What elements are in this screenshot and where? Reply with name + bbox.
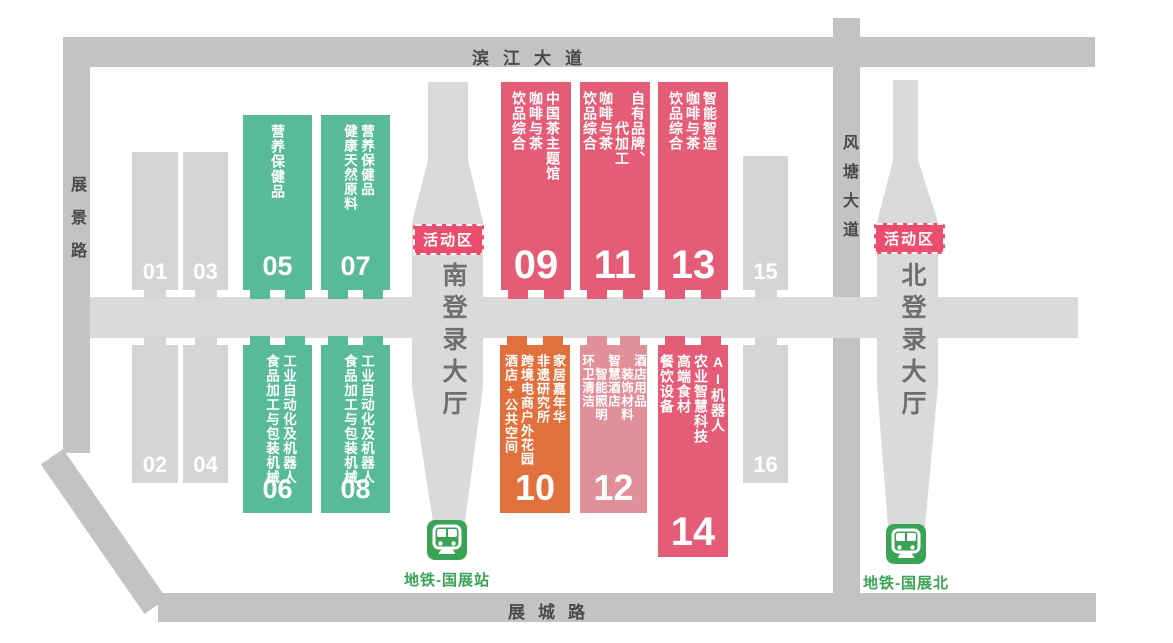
hall-02[interactable]: 02 — [132, 345, 178, 483]
hall-connector — [755, 336, 777, 345]
hall-category-text: 家居嘉年华非遗研究所跨境电商户外花园酒店+公共空间 — [502, 354, 566, 466]
hall-10[interactable]: 家居嘉年华非遗研究所跨境电商户外花园酒店+公共空间10 — [500, 345, 570, 513]
hall-connector — [701, 336, 721, 345]
north-entry-hall-label: 北登录大厅 — [894, 262, 930, 422]
hall-04[interactable]: 04 — [183, 345, 228, 483]
hall-connector — [195, 290, 217, 299]
hall-connector — [250, 336, 270, 345]
hall-connector — [507, 336, 527, 345]
hall-connector — [587, 336, 607, 345]
hall-03[interactable]: 03 — [183, 152, 228, 290]
hall-connector — [195, 336, 217, 345]
hall-connector — [623, 290, 643, 299]
hall-category-text: AI机器人农业智慧科技高端食材餐饮设备 — [658, 354, 726, 444]
hall-number: 04 — [183, 452, 228, 478]
road-label-top: 滨江大道 — [472, 44, 596, 69]
hall-connector — [363, 336, 383, 345]
metro-station-label-north: 地铁-国展北 — [836, 572, 976, 593]
hall-connector — [250, 290, 270, 299]
hall-category-text: 工业自动化及机器人食品加工与包装机械 — [263, 354, 297, 485]
hall-number: 12 — [580, 467, 647, 509]
hall-connector — [701, 290, 721, 299]
hall-connector — [587, 290, 607, 299]
hall-13[interactable]: 智能智造咖啡与茶饮品综合13 — [658, 82, 728, 290]
hall-number: 01 — [132, 259, 178, 285]
hall-11[interactable]: 自有品牌、 代加工咖啡与茶饮品综合11 — [580, 82, 650, 290]
road-label-bottom: 展城路 — [508, 598, 598, 623]
hall-number: 05 — [243, 251, 312, 282]
hall-connector — [285, 290, 305, 299]
hall-connector — [543, 336, 563, 345]
hall-05[interactable]: 营养保健品05 — [243, 115, 312, 290]
hall-connector — [328, 290, 348, 299]
hall-connector — [285, 336, 305, 345]
hall-connector — [755, 290, 777, 299]
hall-number: 06 — [243, 474, 312, 505]
hall-connector — [665, 290, 685, 299]
hall-number: 09 — [501, 243, 571, 288]
metro-station-icon-south[interactable] — [427, 520, 467, 560]
hall-number: 14 — [658, 510, 728, 555]
hall-number: 02 — [132, 452, 178, 478]
hall-06[interactable]: 工业自动化及机器人食品加工与包装机械06 — [243, 345, 312, 513]
hall-category-text: 营养保健品 — [269, 124, 286, 199]
hall-connector — [144, 336, 166, 345]
metro-station-icon-north[interactable] — [886, 524, 926, 564]
hall-category-text: 工业自动化及机器人食品加工与包装机械 — [341, 354, 375, 485]
hall-16[interactable]: 16 — [743, 345, 788, 483]
hall-connector — [144, 290, 166, 299]
road-zhancheng-road — [158, 593, 1096, 622]
exhibition-venue-map: 滨江大道 展景路 风塘大道 展城路 南登录大厅 北登录大厅 活动区 活动区 01… — [0, 0, 1173, 643]
hall-number: 08 — [321, 474, 390, 505]
south-entry-hall-label: 南登录大厅 — [435, 262, 471, 422]
road-label-left: 展景路 — [64, 176, 88, 275]
hall-01[interactable]: 01 — [132, 152, 178, 290]
metro-station-label-south: 地铁-国展站 — [377, 569, 517, 590]
hall-category-text: 中国茶主题馆咖啡与茶饮品综合 — [510, 91, 561, 181]
hall-category-text: 智能智造咖啡与茶饮品综合 — [667, 91, 718, 151]
hall-number: 16 — [743, 452, 788, 478]
hall-15[interactable]: 15 — [743, 156, 788, 290]
hall-number: 13 — [658, 243, 728, 288]
hall-number: 03 — [183, 259, 228, 285]
hall-number: 11 — [580, 243, 650, 288]
hall-09[interactable]: 中国茶主题馆咖啡与茶饮品综合09 — [501, 82, 571, 290]
hall-category-text: 自有品牌、 代加工咖啡与茶饮品综合 — [582, 91, 646, 166]
hall-connector — [665, 336, 685, 345]
hall-category-text: 营养保健品健康天然原料 — [341, 124, 375, 211]
hall-number: 07 — [321, 251, 390, 282]
hall-08[interactable]: 工业自动化及机器人食品加工与包装机械08 — [321, 345, 390, 513]
hall-connector — [328, 336, 348, 345]
hall-07[interactable]: 营养保健品健康天然原料07 — [321, 115, 390, 290]
hall-connector — [544, 290, 564, 299]
hall-14[interactable]: AI机器人农业智慧科技高端食材餐饮设备14 — [658, 345, 728, 557]
hall-category-text: 酒店用品 装饰材料智慧酒店 智能照明环卫清洁 — [580, 354, 645, 422]
activity-area-badge-south: 活动区 — [413, 224, 484, 255]
hall-connector — [363, 290, 383, 299]
activity-area-badge-north: 活动区 — [874, 223, 945, 254]
hall-12[interactable]: 酒店用品 装饰材料智慧酒店 智能照明环卫清洁12 — [580, 345, 647, 513]
hall-number: 15 — [743, 259, 788, 285]
road-label-right: 风塘大道 — [836, 134, 860, 250]
hall-number: 10 — [500, 467, 570, 509]
hall-connector — [620, 336, 640, 345]
hall-connector — [508, 290, 528, 299]
